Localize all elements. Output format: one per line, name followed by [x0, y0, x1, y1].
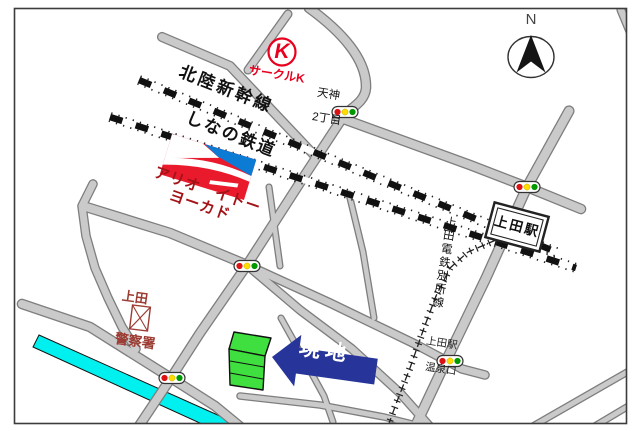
- circle-k-initial: K: [274, 41, 289, 63]
- lane-southeast-2: [590, 401, 637, 429]
- traffic-light-station-north: [514, 182, 540, 193]
- traffic-light-central: [234, 261, 260, 272]
- police-label-line1: 上田: [121, 289, 149, 306]
- map-canvas: [0, 0, 640, 431]
- site-building-icon: [229, 332, 271, 390]
- lane-mid-2: [349, 194, 374, 318]
- access-map: 北陸新幹線 しなの鉄道 K サークルK アリオ イトー ヨーカド 天神 2丁目 …: [0, 0, 640, 431]
- traffic-light-police: [159, 373, 185, 384]
- compass-north-label: N: [526, 12, 537, 28]
- lane-southeast-1: [528, 367, 636, 429]
- road-topright-stub: [621, 10, 636, 46]
- police-station-symbol: [130, 305, 151, 331]
- compass: [508, 35, 554, 78]
